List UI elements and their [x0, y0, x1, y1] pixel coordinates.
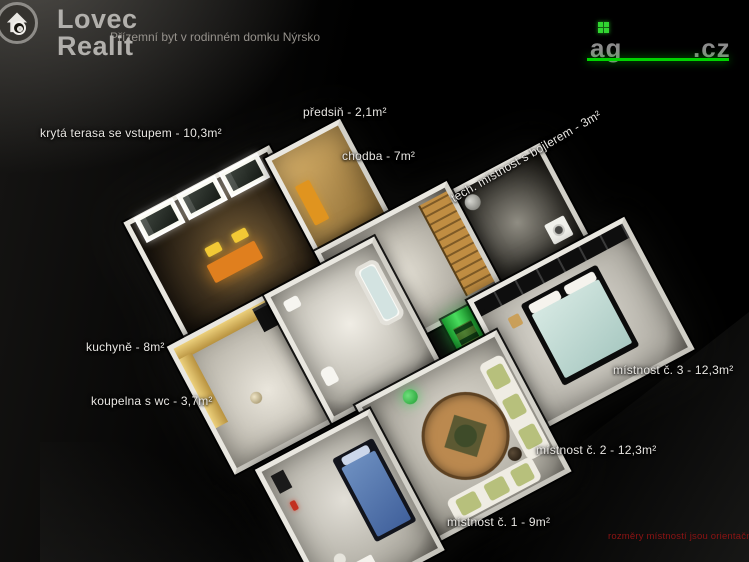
- washing-machine: [544, 215, 574, 245]
- floorplan-render: krytá terasa se vstupem - 10,3m² předsiň…: [0, 0, 749, 562]
- dark-cabinet: [271, 470, 293, 494]
- red-extinguisher: [289, 500, 299, 512]
- label-room2: místnost č. 2 - 12,3m²: [536, 443, 656, 457]
- terrace-chair: [204, 241, 223, 257]
- label-room1: místnost č. 1 - 9m²: [447, 515, 550, 529]
- label-room3: místnost č. 3 - 12,3m²: [613, 363, 733, 377]
- label-kitchen: kuchyně - 8m²: [86, 340, 165, 354]
- plan-subtitle: Přízemní byt v rodinném domku Nýrsko: [110, 30, 320, 44]
- toilet: [319, 365, 340, 387]
- terrace-chair: [231, 227, 250, 243]
- agency-logo-line1: Lovec: [57, 6, 138, 33]
- nightstand: [507, 313, 523, 329]
- kitchen-counter: [179, 353, 228, 428]
- label-bathroom: koupelna s wc - 3,7m²: [91, 394, 213, 408]
- label-entry: předsiň - 2,1m²: [303, 105, 387, 119]
- watermark-underline: [587, 58, 729, 61]
- sink: [282, 295, 302, 313]
- desk-chair: [332, 551, 348, 562]
- entry-bench: [295, 179, 330, 225]
- green-lamp: [400, 387, 420, 407]
- label-disclaimer: rozměry místností jsou orientační: [608, 531, 749, 542]
- lens-icon: [12, 21, 26, 35]
- green-grid-icon: [598, 22, 609, 33]
- label-hallway: chodba - 7m²: [342, 149, 415, 163]
- agency-logo-line2: Realit: [57, 33, 134, 60]
- label-terrace: krytá terasa se vstupem - 10,3m²: [40, 126, 222, 140]
- kitchen-stool: [248, 390, 264, 406]
